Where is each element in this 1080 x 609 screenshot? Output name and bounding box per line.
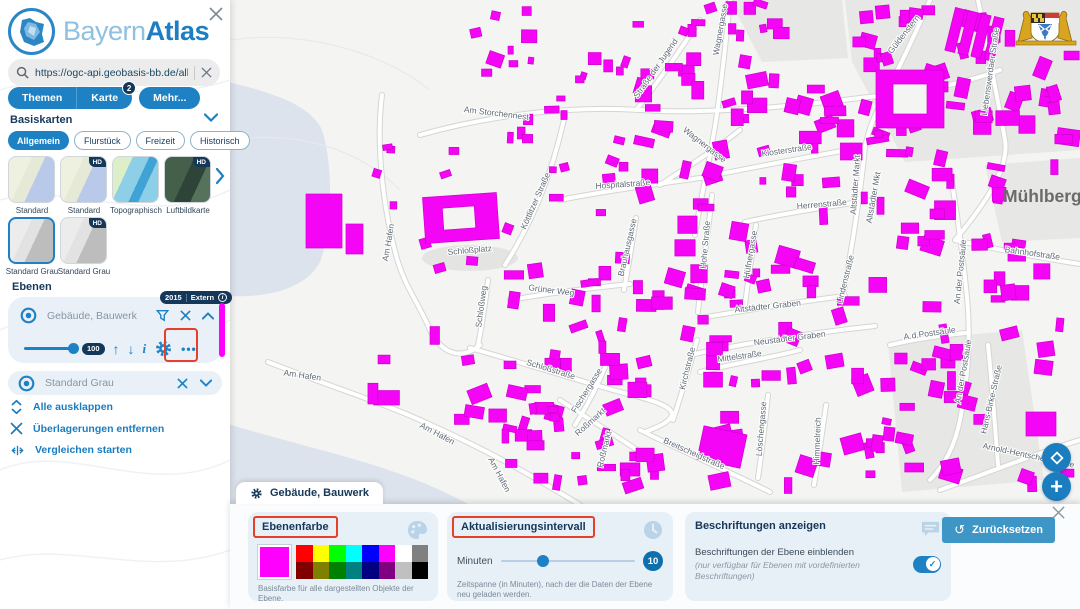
remove-overlays-link[interactable]: Überlagerungen entfernen	[10, 422, 164, 435]
thumb-label: Standard Grau	[56, 267, 112, 276]
info-icon[interactable]: i	[218, 293, 227, 302]
thumbs-next-icon[interactable]	[215, 168, 225, 184]
basemap-thumb-standard-grau-hd[interactable]: HD	[60, 217, 107, 264]
beschriftungen-title: Beschriftungen anzeigen	[695, 520, 826, 532]
compare-arrows-icon	[10, 445, 25, 456]
tab-historisch[interactable]: Historisch	[190, 131, 250, 150]
basiskarten-tabs: Allgemein Flurstück Freizeit Historisch	[8, 131, 250, 150]
palette-swatch[interactable]	[395, 562, 412, 579]
basiskarten-heading: Basiskarten	[10, 114, 72, 126]
card-beschriftungen: Beschriftungen anzeigen Beschriftungen d…	[685, 512, 951, 601]
hd-badge: HD	[193, 157, 210, 167]
layer-settings-gear-icon[interactable]	[154, 339, 173, 358]
geolocate-diamond-icon	[1050, 451, 1064, 465]
interval-value: 10	[643, 551, 663, 571]
palette-icon	[407, 520, 428, 540]
panel-tab-title: Gebäude, Bauwerk	[270, 487, 369, 499]
palette-swatch[interactable]	[346, 545, 363, 562]
beschriftungen-text: Beschriftungen der Ebene einblenden	[695, 547, 903, 558]
layer-more-icon[interactable]: •••	[181, 342, 197, 356]
filter-icon[interactable]	[156, 309, 169, 322]
sidebar: BayernAtlas https://ogc-api.geobasis-bb.…	[0, 0, 230, 609]
layer-visibility-icon[interactable]	[18, 375, 35, 392]
city-label: Mühlberg	[1003, 186, 1080, 206]
compare-link[interactable]: Vergleichen starten	[10, 444, 132, 456]
color-palette	[296, 545, 428, 579]
comment-icon	[920, 520, 941, 538]
basemap-thumb-standard-grau[interactable]	[8, 217, 55, 264]
card-aktualisierungsintervall: Aktualisierungsintervall Minuten 10 Zeit…	[447, 512, 673, 601]
interval-unit-label: Minuten	[457, 556, 493, 567]
selected-color-swatch[interactable]	[258, 545, 291, 579]
layer-remove-icon[interactable]	[180, 310, 191, 321]
beschriftungen-toggle[interactable]: ✓	[913, 556, 941, 573]
layer-name: Gebäude, Bauwerk	[47, 310, 137, 322]
tab-freizeit[interactable]: Freizeit	[136, 131, 186, 150]
palette-swatch[interactable]	[329, 562, 346, 579]
app-logo[interactable]: BayernAtlas	[8, 8, 209, 55]
search-divider	[194, 66, 195, 80]
palette-swatch[interactable]	[329, 545, 346, 562]
layer-card-gebaeude: 2015 Extern i Gebäude, Bauwerk	[8, 297, 222, 363]
palette-swatch[interactable]	[362, 545, 379, 562]
opacity-slider[interactable]	[24, 347, 74, 350]
layer-color-strip	[219, 303, 225, 357]
bayernatlas-app: Am StorchennestStraße der JugendWagnerga…	[0, 0, 1080, 609]
panel-tab[interactable]: Gebäude, Bauwerk	[236, 482, 383, 504]
layer-info-icon[interactable]: i	[143, 341, 147, 357]
thumb-label: Standard	[4, 206, 60, 215]
search-bar[interactable]: https://ogc-api.geobasis-bb.de/alkis-ver…	[8, 59, 220, 86]
nav-mehr-button[interactable]: Mehr...	[139, 87, 200, 109]
street-label: Himmelreich	[811, 417, 823, 465]
opacity-value: 100	[82, 343, 105, 355]
karte-count-badge: 2	[122, 81, 136, 95]
search-input[interactable]: https://ogc-api.geobasis-bb.de/alkis-ver…	[35, 67, 188, 79]
interval-slider[interactable]	[501, 560, 635, 563]
palette-swatch[interactable]	[346, 562, 363, 579]
thumb-label: Standard Grau	[4, 267, 60, 276]
layer-collapse-icon[interactable]	[202, 312, 214, 320]
palette-swatch[interactable]	[379, 545, 396, 562]
palette-swatch[interactable]	[296, 562, 313, 579]
expand-all-link[interactable]: Alle ausklappen	[10, 400, 113, 414]
palette-swatch[interactable]	[296, 545, 313, 562]
basemap-thumb-standard[interactable]	[8, 156, 55, 203]
layer-settings-panel: Gebäude, Bauwerk Ebenenfarbe Basisfarbe …	[230, 504, 1080, 609]
settings-gear-icon	[250, 487, 263, 500]
palette-swatch[interactable]	[379, 562, 396, 579]
expand-all-icon	[10, 400, 23, 414]
palette-swatch[interactable]	[412, 562, 429, 579]
reset-button[interactable]: ↺ Zurücksetzen	[942, 517, 1055, 543]
ebenenfarbe-title: Ebenenfarbe	[253, 516, 338, 538]
palette-swatch[interactable]	[313, 562, 330, 579]
layer-name: Standard Grau	[45, 377, 177, 389]
layer-move-down-icon[interactable]: ↓	[128, 341, 135, 357]
remove-overlays-icon	[10, 422, 23, 435]
basemap-thumb-luftbildkarte[interactable]: HD	[164, 156, 211, 203]
bavaria-coat-of-arms	[1016, 11, 1076, 45]
card-ebenenfarbe: Ebenenfarbe Basisfarbe für alle dargeste…	[248, 512, 438, 601]
thumb-label: Standard	[56, 206, 112, 215]
layer-card-standard-grau: Standard Grau	[8, 371, 222, 395]
palette-swatch[interactable]	[313, 545, 330, 562]
main-nav: Themen Karte 2 Mehr...	[8, 87, 200, 109]
layer-remove-icon[interactable]	[177, 378, 188, 389]
search-clear-icon[interactable]	[201, 67, 212, 78]
thumb-label: Luftbildkarte	[160, 206, 216, 215]
search-icon	[16, 66, 29, 79]
basemap-thumb-topographisch[interactable]	[112, 156, 159, 203]
basiskarten-collapse-icon[interactable]	[204, 113, 218, 122]
bayernatlas-logo-icon	[8, 8, 55, 55]
basemap-thumb-standard-hd[interactable]: HD	[60, 156, 107, 203]
app-title: BayernAtlas	[63, 16, 209, 47]
tab-allgemein[interactable]: Allgemein	[8, 131, 69, 150]
geolocate-button[interactable]	[1042, 443, 1071, 472]
hd-badge: HD	[89, 218, 106, 228]
layer-visibility-icon[interactable]	[20, 307, 37, 324]
reset-icon: ↺	[954, 522, 965, 538]
layer-move-up-icon[interactable]: ↑	[113, 341, 120, 357]
interval-slider-thumb[interactable]	[537, 555, 549, 567]
interval-caption: Zeitspanne (in Minuten), nach der die Da…	[457, 580, 663, 600]
tab-flurstueck[interactable]: Flurstück	[74, 131, 131, 150]
hd-badge: HD	[89, 157, 106, 167]
palette-swatch[interactable]	[412, 545, 429, 562]
thumb-label: Topographisch	[108, 206, 164, 215]
palette-swatch[interactable]	[362, 562, 379, 579]
interval-title: Aktualisierungsintervall	[452, 516, 595, 538]
ebenen-heading: Ebenen	[12, 281, 52, 293]
zoom-in-button[interactable]: +	[1042, 472, 1071, 501]
clock-icon	[643, 520, 663, 540]
beschriftungen-note: (nur verfügbar für Ebenen mit vordefinie…	[695, 560, 903, 581]
palette-swatch[interactable]	[395, 545, 412, 562]
ebenenfarbe-caption: Basisfarbe für alle dargestellten Objekt…	[258, 584, 428, 604]
nav-themen-button[interactable]: Themen	[8, 87, 77, 109]
layer-expand-icon[interactable]	[200, 379, 212, 387]
